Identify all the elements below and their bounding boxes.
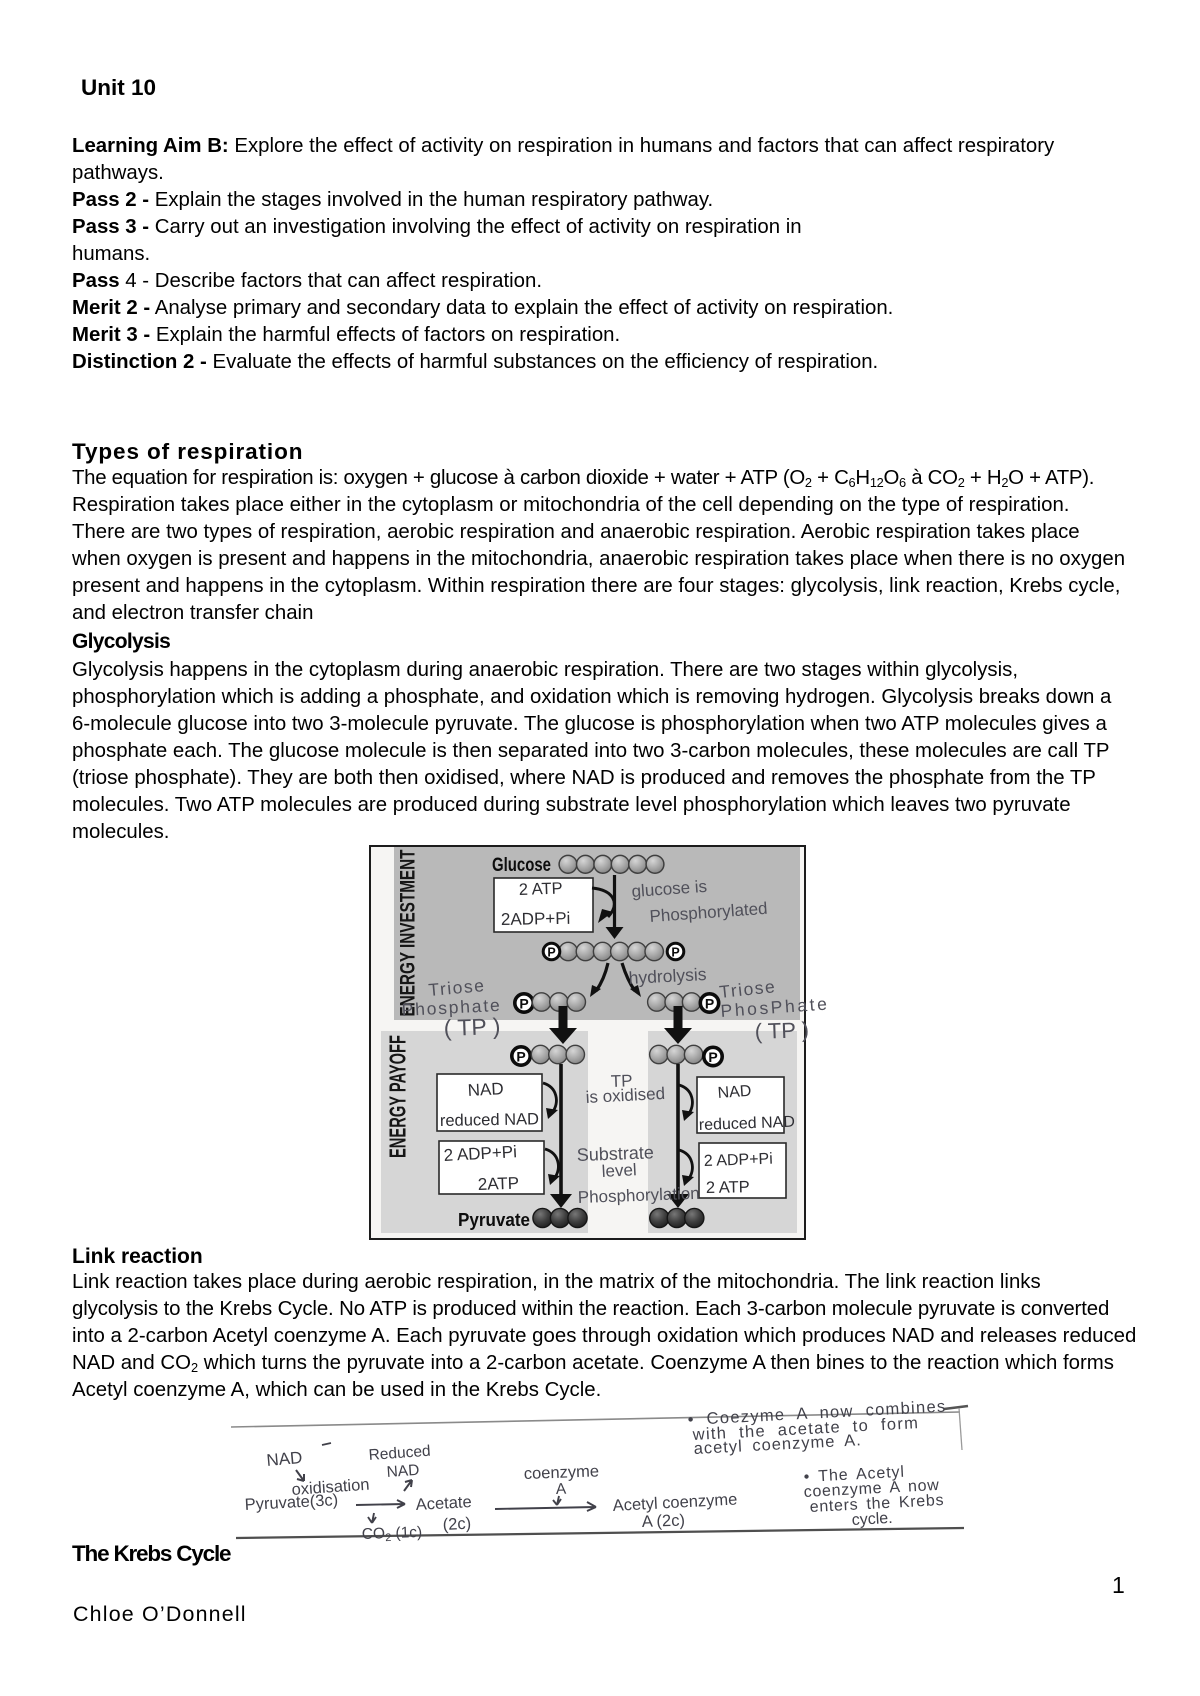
svg-text:Reduced: Reduced [368,1443,431,1464]
svg-text:NAD: NAD [266,1448,303,1470]
svg-text:NAD: NAD [386,1462,420,1481]
svg-text:Acetate: Acetate [415,1493,472,1514]
svg-text:A: A [556,1481,568,1498]
svg-text:cycle.: cycle. [851,1510,893,1529]
svg-text:A (2c): A (2c) [642,1512,686,1531]
svg-text:CO2 (1c): CO2 (1c) [362,1524,423,1545]
svg-text:(2c): (2c) [442,1515,471,1534]
svg-text:Pyruvate(3c): Pyruvate(3c) [244,1491,338,1514]
